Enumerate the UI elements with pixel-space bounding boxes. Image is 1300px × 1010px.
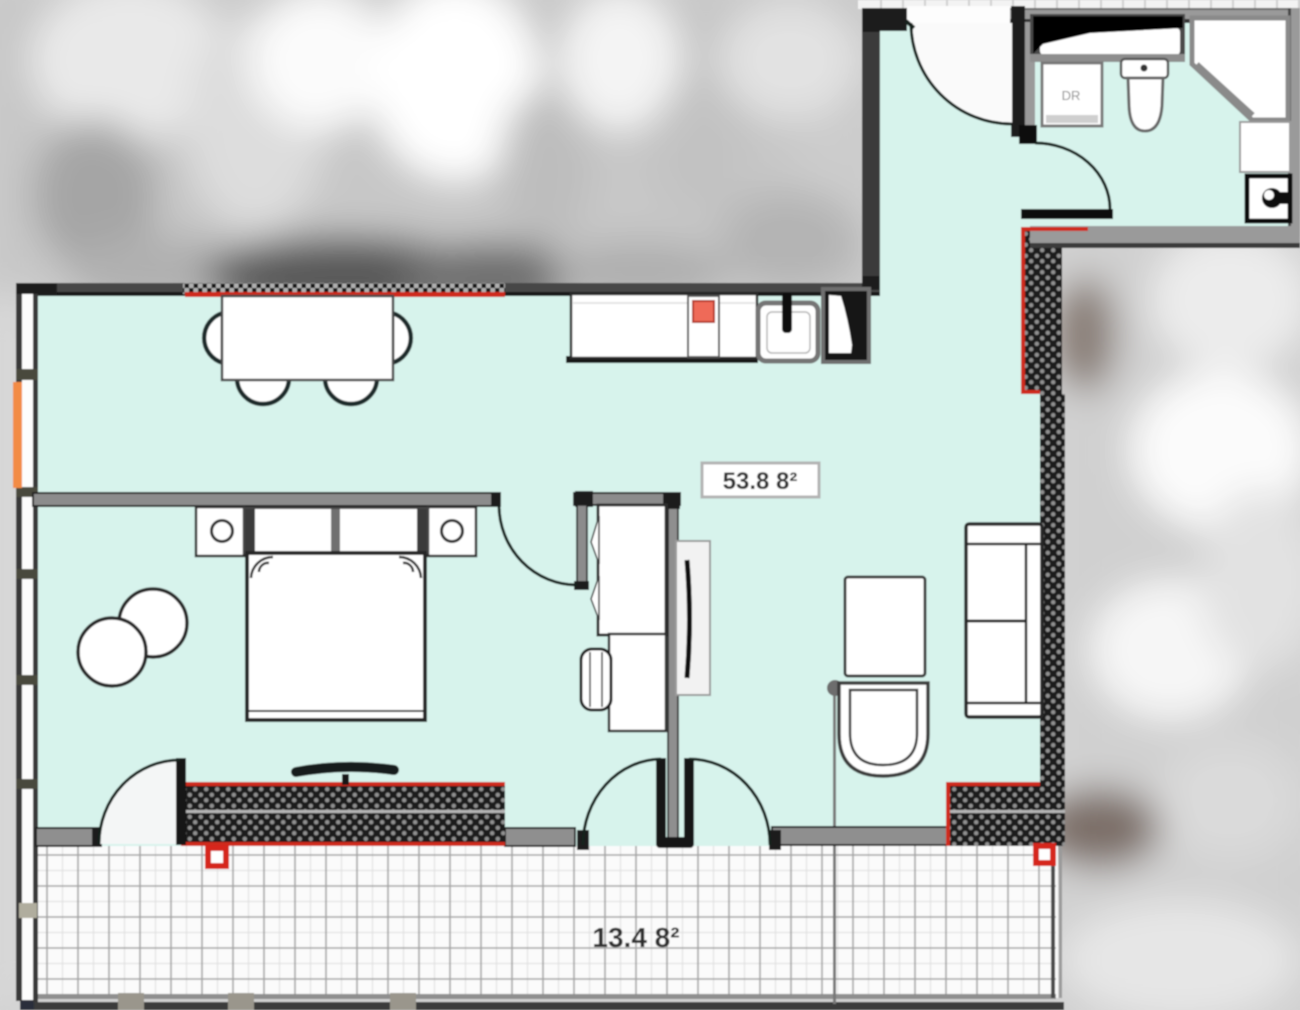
svg-text:DR: DR bbox=[1062, 88, 1081, 103]
svg-text:53.8 8²: 53.8 8² bbox=[723, 468, 798, 495]
svg-text:13.4 8²: 13.4 8² bbox=[592, 922, 679, 953]
